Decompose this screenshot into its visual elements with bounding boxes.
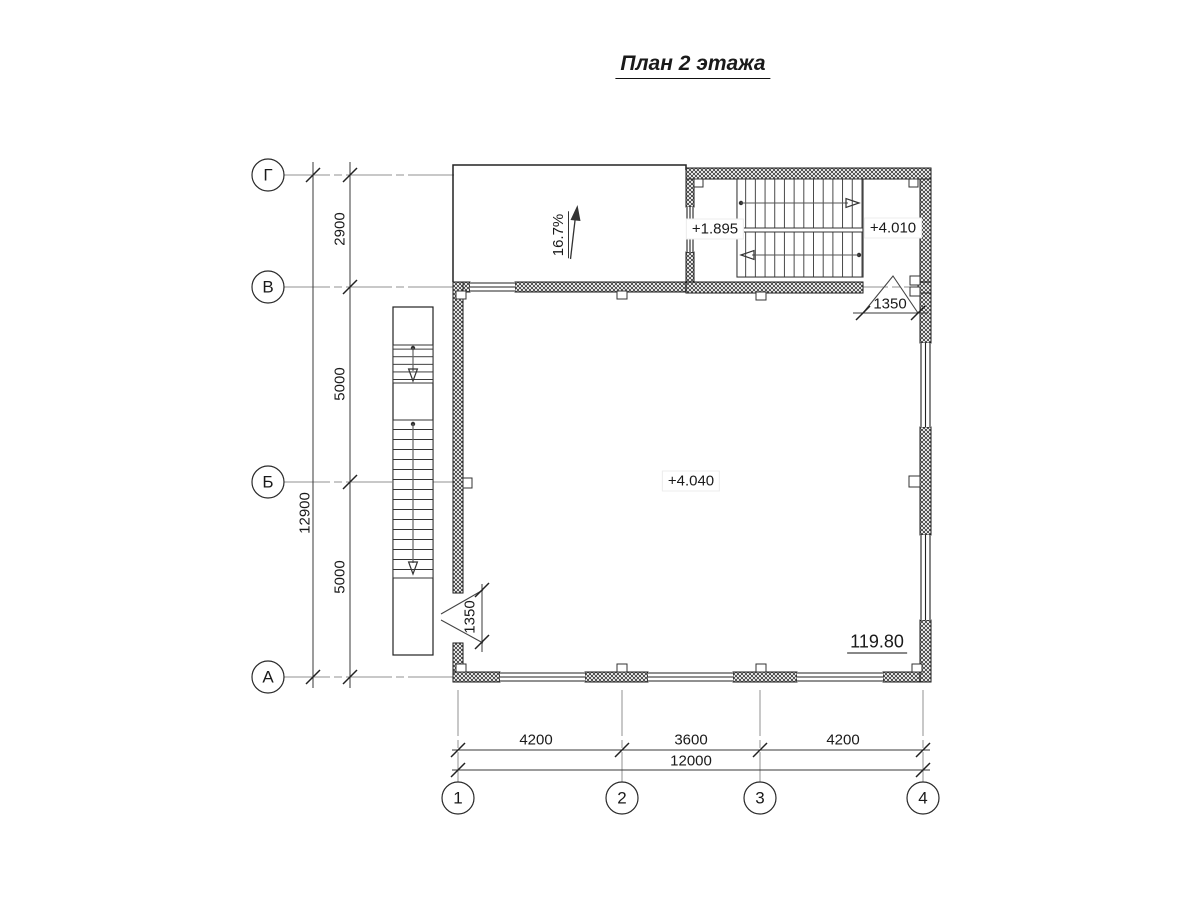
dim-left-total: 12900 xyxy=(298,492,313,534)
wall-bottom-pier-2 xyxy=(585,672,648,682)
wall-bottom-pier-1 xyxy=(453,672,500,682)
axis-label-4: 4 xyxy=(918,790,927,807)
wall-east-middle xyxy=(920,427,931,535)
dim-left-span-2: 5000 xyxy=(333,367,348,400)
axis-label-1: 1 xyxy=(453,790,462,807)
dim-west-door: 1350 xyxy=(463,600,478,633)
wall-east-upper xyxy=(920,168,931,343)
wall-stair-west-lower xyxy=(686,252,694,282)
window-east-1 xyxy=(920,343,931,427)
floor-plan-canvas: План 2 этажа Г В Б А 1 2 3 4 2900 5000 5… xyxy=(0,0,1200,900)
axis-label-2: 2 xyxy=(617,790,626,807)
wall-east-lower xyxy=(920,620,931,682)
wall-stair-west-upper xyxy=(686,179,694,207)
window-bottom-3 xyxy=(797,672,883,682)
window-top-wall xyxy=(470,282,515,292)
wall-bottom-pier-3 xyxy=(733,672,797,682)
window-bottom-1 xyxy=(500,672,585,682)
page-title: План 2 этажа xyxy=(615,53,770,79)
floor-plan-drawing xyxy=(0,0,1200,900)
axis-label-v: В xyxy=(262,279,273,296)
dim-bottom-total: 12000 xyxy=(670,754,712,769)
axis-label-g: Г xyxy=(263,167,272,184)
wall-west-upper xyxy=(453,282,463,593)
dim-left-span-1: 2900 xyxy=(333,212,348,245)
window-east-2 xyxy=(920,535,931,620)
window-bottom-2 xyxy=(648,672,733,682)
area-label: 119.80 xyxy=(847,633,907,654)
dim-north-door: 1350 xyxy=(873,297,906,312)
dim-left-span-3: 5000 xyxy=(333,560,348,593)
level-mark-stair-mid: +1.895 xyxy=(686,219,744,240)
staircase-west xyxy=(393,307,433,655)
level-mark-stair-top: +4.010 xyxy=(864,218,922,239)
ramp-slope-label: 16.7% xyxy=(551,212,569,259)
windows xyxy=(470,207,931,682)
axis-label-3: 3 xyxy=(755,790,764,807)
ramp-outline xyxy=(453,165,686,282)
axis-label-b: Б xyxy=(262,474,273,491)
axis-label-a: А xyxy=(262,669,273,686)
level-mark-floor: +4.040 xyxy=(662,471,720,492)
ramp-arrow-head xyxy=(571,205,581,221)
door-openings xyxy=(441,276,918,643)
dim-bottom-span-2: 3600 xyxy=(674,733,707,748)
staircase-north xyxy=(737,179,863,277)
wall-stair-bottom xyxy=(686,282,863,293)
wall-top xyxy=(515,282,686,292)
dim-bottom-span-3: 4200 xyxy=(826,733,859,748)
wall-stair-north-top xyxy=(686,168,931,179)
dim-bottom-span-1: 4200 xyxy=(519,733,552,748)
